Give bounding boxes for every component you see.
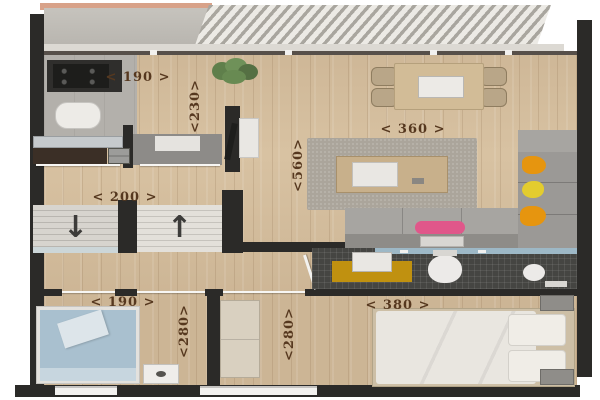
kitchen-cabinet xyxy=(33,148,107,164)
door-threshold xyxy=(223,291,305,293)
dimension-bedroom-left-width: < 190 > xyxy=(83,295,163,311)
tv-cabinet xyxy=(239,118,259,158)
dimension-bedroom-right-width: < 380 > xyxy=(358,298,438,314)
dining-chair xyxy=(480,67,507,86)
kitchen-drawers xyxy=(108,148,130,164)
door-threshold xyxy=(137,291,205,293)
dining-placemat xyxy=(418,76,464,98)
dimension-stairs-width: < 200 > xyxy=(85,190,165,206)
bedroom-top-wall xyxy=(205,289,223,296)
stair-right-wall xyxy=(222,190,243,253)
door-threshold xyxy=(62,291,115,293)
pink-pillow xyxy=(415,221,465,234)
bathroom-sink xyxy=(352,252,392,272)
balcony-deck xyxy=(44,8,212,49)
dining-chair xyxy=(480,88,507,107)
sofa-bench xyxy=(420,236,464,247)
dimension-living-depth: <560> xyxy=(291,148,307,192)
stair-separator-wall xyxy=(118,200,137,253)
stairs-landing xyxy=(33,247,118,253)
bottom-window xyxy=(200,386,317,395)
bath-bedroom-wall xyxy=(318,289,577,296)
kitchen-counter-band xyxy=(33,136,123,148)
toilet xyxy=(428,255,462,283)
bedroom-divider-wall xyxy=(207,293,220,390)
door-threshold xyxy=(36,164,120,166)
coffee-table-books xyxy=(352,162,398,187)
door-threshold xyxy=(140,164,220,166)
nightstand xyxy=(540,295,574,311)
bath-faucet xyxy=(400,250,408,253)
pergola-roof xyxy=(195,5,551,45)
coffee-table-item xyxy=(412,178,424,184)
right-wall xyxy=(577,20,592,377)
toilet-tank xyxy=(433,250,457,256)
pouf-center xyxy=(156,371,166,377)
bed-right-pillow xyxy=(508,314,566,346)
wardrobe xyxy=(220,300,260,378)
closet-appliance xyxy=(155,136,200,151)
dimension-bedroom-left-depth: <280> xyxy=(177,314,193,358)
dimension-kitchen-width: < 190 > xyxy=(98,70,178,86)
bath-towel xyxy=(545,281,567,287)
bed-left-pillows xyxy=(40,368,136,381)
orange-pillow xyxy=(522,156,546,174)
yellow-pillow xyxy=(522,181,544,198)
bedroom-top-wall xyxy=(30,289,62,296)
stairs-down-flight: ↓ xyxy=(33,205,118,252)
nightstand xyxy=(540,369,574,385)
plant xyxy=(210,58,260,86)
sofa-right-armrest xyxy=(518,130,577,152)
bottom-window xyxy=(55,386,117,395)
washbasin-round xyxy=(523,264,545,281)
dimension-living-width: < 360 > xyxy=(373,122,453,138)
stairs-up-flight: ↑ xyxy=(137,205,222,252)
stairs-down-arrow: ↓ xyxy=(33,205,118,251)
floor-plan: ↓ ↑ < 190 > <230> < 360 > <560> < 200 > … xyxy=(0,0,600,400)
stairs-up-arrow: ↑ xyxy=(137,205,222,251)
kitchen-sink xyxy=(55,102,101,129)
bath-faucet xyxy=(478,250,486,253)
dimension-kitchen-depth: <230> xyxy=(188,89,204,133)
dimension-bedroom-right-depth: <280> xyxy=(282,317,298,361)
